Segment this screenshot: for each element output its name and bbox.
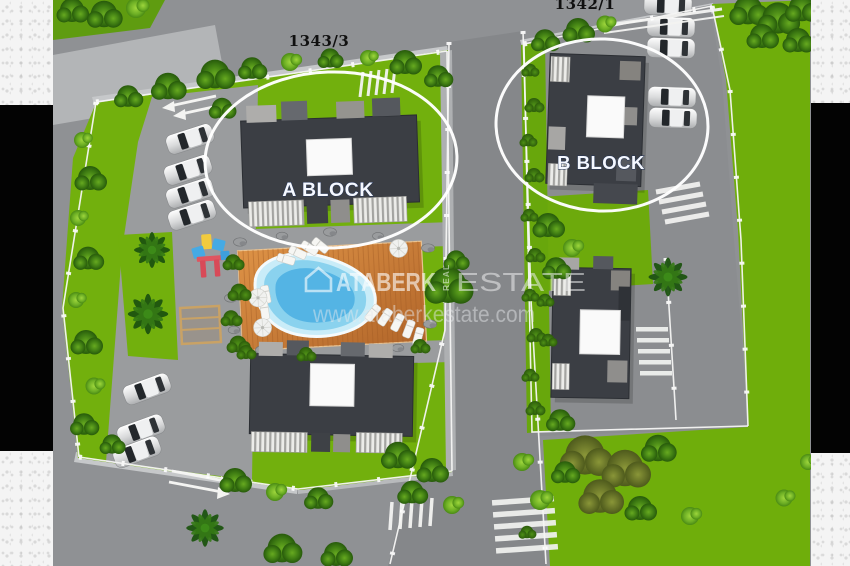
b-block-label: B BLOCK — [557, 152, 645, 173]
lace-pattern-bottom-left — [0, 451, 53, 566]
watermark-brand-2: ESTATE — [456, 267, 586, 297]
b-block-roof-hatch — [586, 96, 624, 138]
a-block-label: A BLOCK — [282, 179, 374, 201]
lace-pattern-top-left — [0, 0, 53, 105]
watermark-brand-small: REAL — [441, 264, 451, 291]
watermark-brand-1: ATABERK — [336, 267, 436, 297]
c-block-building — [249, 340, 418, 455]
left-frame-bar — [0, 0, 53, 566]
lace-pattern-top-right — [811, 0, 850, 103]
watermark-url: www.ataberkestate.com — [312, 301, 535, 327]
site-plan-render: 1343/3 1342/1 A BLOCK B BLOCK ATABERK RE… — [0, 0, 850, 566]
parcel-1342-label: 1342/1 — [555, 0, 616, 13]
d-block-roof-hatch — [580, 310, 621, 355]
c-block-roof-hatch — [310, 364, 355, 407]
pergola — [180, 306, 221, 344]
parcel-1343-label: 1343/3 — [289, 32, 350, 50]
b-block-building — [545, 53, 649, 204]
right-frame-bar — [811, 0, 850, 566]
a-block-roof-hatch — [306, 138, 352, 176]
lace-pattern-bottom-right — [811, 453, 850, 566]
site-plan-screenshot: 1343/3 1342/1 A BLOCK B BLOCK ATABERK RE… — [0, 0, 850, 566]
